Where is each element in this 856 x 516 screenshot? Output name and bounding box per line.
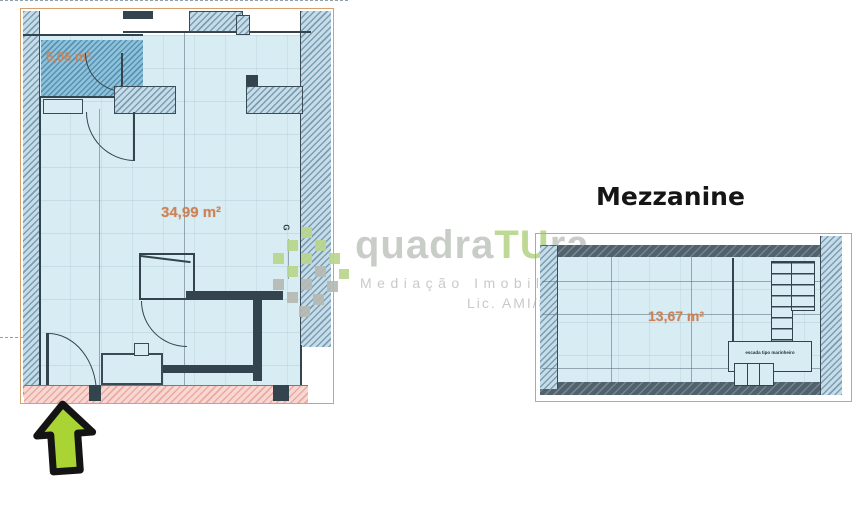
mezz-wall-top <box>540 245 841 257</box>
entrance-door-leaf <box>133 112 135 160</box>
wall-top-block <box>123 11 153 19</box>
stairs-ladder-icon <box>791 261 815 311</box>
main-floorplan: 5,06 m² 34,99 m² G <box>20 8 334 404</box>
fixture-stub <box>134 343 149 356</box>
entrance-arrow-icon <box>29 398 100 478</box>
survey-dash-line <box>0 0 348 1</box>
stairs-lower-cells <box>734 363 774 386</box>
wall-left-inner-line <box>39 96 41 391</box>
wall-right <box>300 11 331 347</box>
wall-top-left <box>23 34 143 36</box>
cell <box>760 364 773 385</box>
wall-top-stub <box>236 15 250 35</box>
grid-line-v <box>99 109 100 389</box>
mezz-wall-bottom <box>540 382 841 395</box>
mezz-wall-right <box>820 236 842 395</box>
bathroom-wall-bottom <box>149 365 262 373</box>
wall-top-hatch-block <box>189 11 243 32</box>
threshold-mark <box>273 385 289 401</box>
cell <box>748 364 761 385</box>
bathroom-wall-top <box>186 291 283 300</box>
fixture-box <box>101 353 163 385</box>
main-area-label: 34,99 m² <box>161 204 221 221</box>
stairs-ladder-icon <box>771 261 793 346</box>
header-wall-left <box>114 86 176 114</box>
gas-mark: G <box>282 224 291 230</box>
mezzanine-title: Mezzanine <box>596 182 745 211</box>
entrance-frame <box>43 99 83 114</box>
wall-left <box>23 11 40 397</box>
mezzanine-area-label: 13,67 m² <box>648 308 704 324</box>
mezzanine-floorplan: escada tipo marinheiro 13,67 m² <box>535 233 852 402</box>
stairs-wall <box>732 258 734 342</box>
blue-room-area-label: 5,06 m² <box>46 49 91 64</box>
cell <box>735 364 748 385</box>
header-wall-right <box>246 86 303 114</box>
grid-line-v <box>611 257 612 382</box>
gas-mark-line <box>288 239 289 279</box>
brand-part1: quadra <box>355 223 494 267</box>
